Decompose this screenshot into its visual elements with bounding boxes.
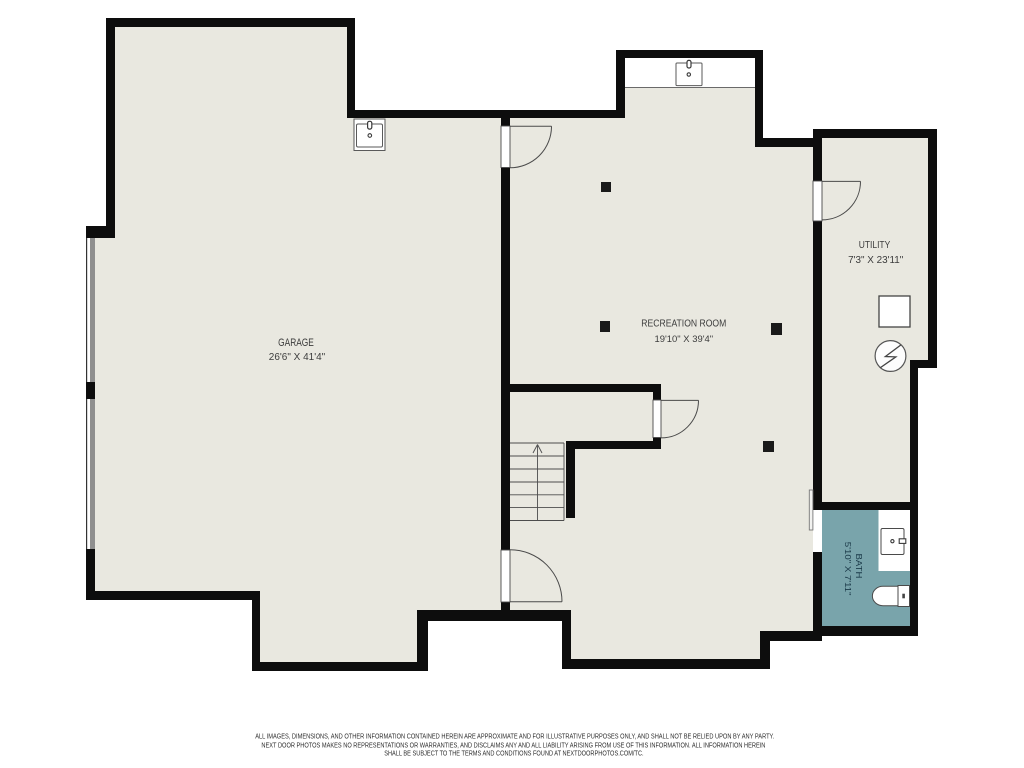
svg-text:7'3" X 23'11": 7'3" X 23'11" xyxy=(848,255,904,266)
svg-text:19'10" X 39'4": 19'10" X 39'4" xyxy=(655,334,714,345)
svg-text:BATH: BATH xyxy=(854,554,864,579)
svg-text:5'10" X 7'11": 5'10" X 7'11" xyxy=(843,542,853,596)
svg-text:GARAGE: GARAGE xyxy=(278,337,314,349)
svg-text:RECREATION ROOM: RECREATION ROOM xyxy=(641,319,726,330)
svg-text:ALL IMAGES, DIMENSIONS, AND OT: ALL IMAGES, DIMENSIONS, AND OTHER INFORM… xyxy=(255,733,774,740)
svg-text:UTILITY: UTILITY xyxy=(859,240,891,251)
svg-text:SHALL BE SUBJECT TO THE TERMS: SHALL BE SUBJECT TO THE TERMS AND CONDIT… xyxy=(384,751,643,758)
svg-text:26'6" X 41'4": 26'6" X 41'4" xyxy=(269,352,326,363)
svg-text:NEXT DOOR PHOTOS MAKES NO REPR: NEXT DOOR PHOTOS MAKES NO REPRESENTATION… xyxy=(261,742,765,749)
